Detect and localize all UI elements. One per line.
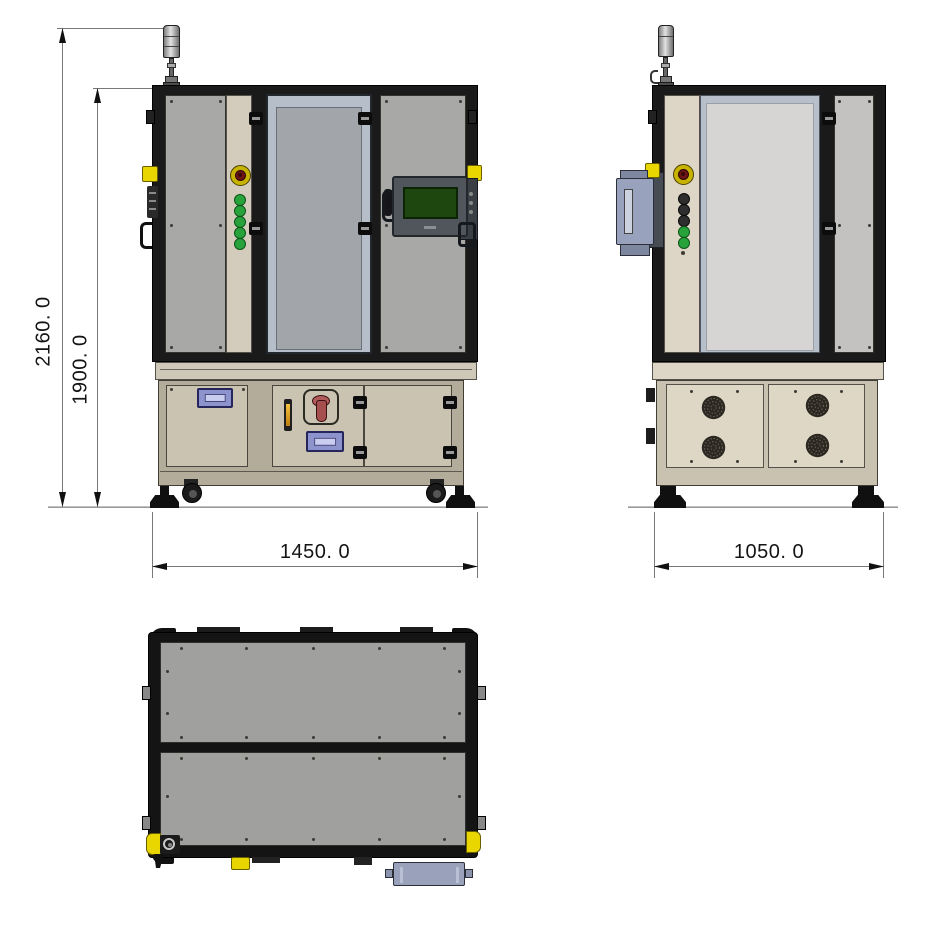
dim-front-width: 1450. 0 bbox=[245, 541, 385, 564]
screw-dot bbox=[736, 460, 739, 463]
screw-dot bbox=[312, 757, 315, 760]
screw-dot bbox=[180, 736, 183, 739]
screw-dot bbox=[838, 346, 841, 349]
screw-dot bbox=[385, 346, 388, 349]
frame-tab bbox=[142, 816, 151, 830]
door-hinge bbox=[822, 222, 836, 235]
yellow-lamp bbox=[466, 831, 481, 853]
fan-grille-icon bbox=[700, 434, 727, 461]
screw-dot bbox=[443, 647, 446, 650]
side-connector bbox=[646, 388, 655, 402]
screw-dot bbox=[378, 757, 381, 760]
yellow-button-top bbox=[231, 857, 250, 870]
screw-dot bbox=[170, 388, 173, 391]
screw-dot bbox=[690, 390, 693, 393]
fan-grille-icon bbox=[804, 392, 831, 419]
screw-dot bbox=[170, 346, 173, 349]
screw-dot bbox=[736, 390, 739, 393]
cabinet-right-door bbox=[364, 385, 452, 467]
signal-tower-icon bbox=[163, 25, 181, 86]
screw-dot bbox=[459, 100, 462, 103]
signal-tower-top-cap bbox=[160, 835, 180, 854]
yellow-lamp bbox=[146, 833, 161, 855]
keyhole-dot bbox=[681, 251, 685, 255]
hmi-top-body bbox=[393, 862, 465, 886]
edge-mark bbox=[197, 627, 240, 632]
leveling-foot bbox=[150, 495, 179, 508]
nameplate bbox=[197, 388, 233, 408]
screw-dot bbox=[690, 460, 693, 463]
screw-dot bbox=[443, 757, 446, 760]
screw-dot bbox=[170, 224, 173, 227]
tower-collar bbox=[661, 63, 670, 68]
screw-dot bbox=[794, 390, 797, 393]
screw-dot bbox=[840, 460, 843, 463]
tower-collar bbox=[167, 63, 176, 68]
screw-dot bbox=[838, 224, 841, 227]
screw-dot bbox=[245, 647, 248, 650]
screw-dot bbox=[219, 100, 222, 103]
side-window-glass bbox=[706, 103, 814, 351]
screw-dot bbox=[180, 647, 183, 650]
tower-lamp-seam bbox=[659, 36, 673, 37]
screw-dot bbox=[219, 224, 222, 227]
top-panel-upper bbox=[160, 642, 466, 743]
hmi-side-body bbox=[616, 178, 654, 245]
screw-dot bbox=[245, 736, 248, 739]
edge-mark bbox=[400, 627, 433, 632]
caster-hub bbox=[189, 490, 197, 498]
foot-stem bbox=[858, 486, 874, 496]
screw-dot bbox=[385, 224, 388, 227]
side-connector bbox=[646, 428, 655, 444]
cabinet-hinge bbox=[353, 446, 367, 459]
tower-lamp bbox=[658, 25, 674, 57]
hmi-top-tab bbox=[385, 869, 393, 878]
screw-dot bbox=[219, 346, 222, 349]
fan-grille-icon bbox=[804, 432, 831, 459]
door-hinge bbox=[358, 112, 372, 125]
hmi-bottom-step bbox=[620, 244, 650, 256]
screw-dot bbox=[245, 757, 248, 760]
pull-handle bbox=[140, 222, 152, 249]
screw-dot bbox=[166, 670, 169, 673]
indicator-button-green bbox=[234, 238, 246, 250]
leveling-foot bbox=[446, 495, 475, 508]
screw-dot bbox=[166, 712, 169, 715]
screw-dot bbox=[868, 100, 871, 103]
screw-dot bbox=[242, 388, 245, 391]
leveling-foot bbox=[654, 495, 686, 508]
cabinet-hinge bbox=[443, 396, 457, 409]
nameplate bbox=[306, 431, 344, 452]
indicator-button-green bbox=[678, 237, 690, 249]
hmi-screen bbox=[403, 187, 458, 219]
screw-dot bbox=[378, 647, 381, 650]
cabinet-base-line bbox=[160, 471, 462, 472]
signal-tower-icon bbox=[658, 25, 676, 86]
frame-tab bbox=[648, 110, 657, 124]
main-power-switch-handle bbox=[316, 400, 327, 422]
screw-dot bbox=[838, 100, 841, 103]
fan-grille-icon bbox=[700, 394, 727, 421]
connector-pin bbox=[149, 200, 156, 202]
door-hinge bbox=[249, 222, 263, 235]
tower-lamp bbox=[163, 25, 180, 58]
screw-dot bbox=[312, 838, 315, 841]
door-hinge bbox=[822, 112, 836, 125]
screw-dot bbox=[180, 838, 183, 841]
sight-glass-fluid bbox=[286, 404, 290, 426]
door-hinge bbox=[358, 222, 372, 235]
foot-stem bbox=[660, 486, 676, 496]
screw-dot bbox=[459, 346, 462, 349]
hmi-left-handle bbox=[382, 190, 392, 222]
table-band-line bbox=[160, 369, 472, 370]
drawing-page: { "drawing": { "type": "three-view engin… bbox=[0, 0, 935, 925]
leveling-foot bbox=[852, 495, 884, 508]
tower-cap-dot bbox=[168, 843, 172, 847]
sight-glass bbox=[284, 399, 292, 431]
screw-dot bbox=[458, 795, 461, 798]
hmi-panel bbox=[392, 176, 468, 237]
side-table-band bbox=[652, 362, 884, 380]
emergency-stop-button bbox=[673, 164, 694, 185]
yellow-lamp bbox=[142, 166, 158, 182]
hmi-side-key bbox=[469, 201, 473, 205]
front-left-panel bbox=[165, 95, 226, 353]
connector-block bbox=[147, 186, 158, 218]
frame-tab bbox=[468, 110, 477, 124]
estop-core bbox=[238, 173, 242, 177]
edge-mark bbox=[300, 627, 333, 632]
cabinet-hinge bbox=[443, 446, 457, 459]
top-view bbox=[100, 600, 520, 920]
screw-dot bbox=[245, 838, 248, 841]
front-view bbox=[0, 0, 500, 520]
hmi-top-seam bbox=[456, 867, 459, 883]
screw-dot bbox=[443, 838, 446, 841]
emergency-stop-button bbox=[230, 165, 251, 186]
hmi-side-key bbox=[469, 210, 473, 214]
tower-lamp-seam bbox=[164, 36, 179, 37]
screw-dot bbox=[378, 838, 381, 841]
connector-pin bbox=[149, 208, 156, 210]
top-panel-lower bbox=[160, 752, 466, 846]
hmi-side-key bbox=[469, 192, 473, 196]
screw-dot bbox=[170, 100, 173, 103]
caster-wheel bbox=[426, 483, 446, 503]
door-hinge bbox=[249, 112, 263, 125]
screw-dot bbox=[166, 795, 169, 798]
screw-dot bbox=[443, 736, 446, 739]
screw-dot bbox=[868, 346, 871, 349]
edge-mark bbox=[354, 857, 372, 865]
foot-stem bbox=[160, 486, 169, 496]
edge-mark bbox=[252, 857, 280, 863]
foot-stem bbox=[455, 486, 464, 496]
screw-dot bbox=[868, 224, 871, 227]
screw-dot bbox=[458, 712, 461, 715]
cabinet-hinge bbox=[353, 396, 367, 409]
side-view bbox=[600, 0, 935, 520]
tower-hook bbox=[650, 70, 658, 84]
frame-tab bbox=[146, 110, 155, 124]
connector-pin bbox=[149, 192, 156, 194]
screw-dot bbox=[378, 736, 381, 739]
screw-dot bbox=[458, 670, 461, 673]
screw-dot bbox=[385, 100, 388, 103]
screw-dot bbox=[312, 647, 315, 650]
screw-dot bbox=[312, 736, 315, 739]
hmi-bottom-bracket bbox=[458, 222, 476, 247]
caster-wheel bbox=[182, 483, 202, 503]
hmi-side-slot bbox=[624, 189, 633, 234]
hmi-top-tab bbox=[465, 869, 473, 878]
caster-hub bbox=[433, 490, 441, 498]
tower-lamp-seam bbox=[164, 46, 179, 47]
screw-dot bbox=[794, 460, 797, 463]
screw-dot bbox=[180, 757, 183, 760]
front-door-glass bbox=[276, 107, 362, 350]
hmi-top-seam bbox=[400, 867, 403, 883]
frame-tab bbox=[477, 816, 486, 830]
frame-tab bbox=[142, 686, 151, 700]
hmi-brand-mark bbox=[424, 226, 436, 229]
table-band bbox=[155, 362, 477, 380]
screw-dot bbox=[840, 390, 843, 393]
estop-core bbox=[681, 172, 685, 176]
frame-tab bbox=[477, 686, 486, 700]
dim-side-depth: 1050. 0 bbox=[699, 541, 839, 564]
